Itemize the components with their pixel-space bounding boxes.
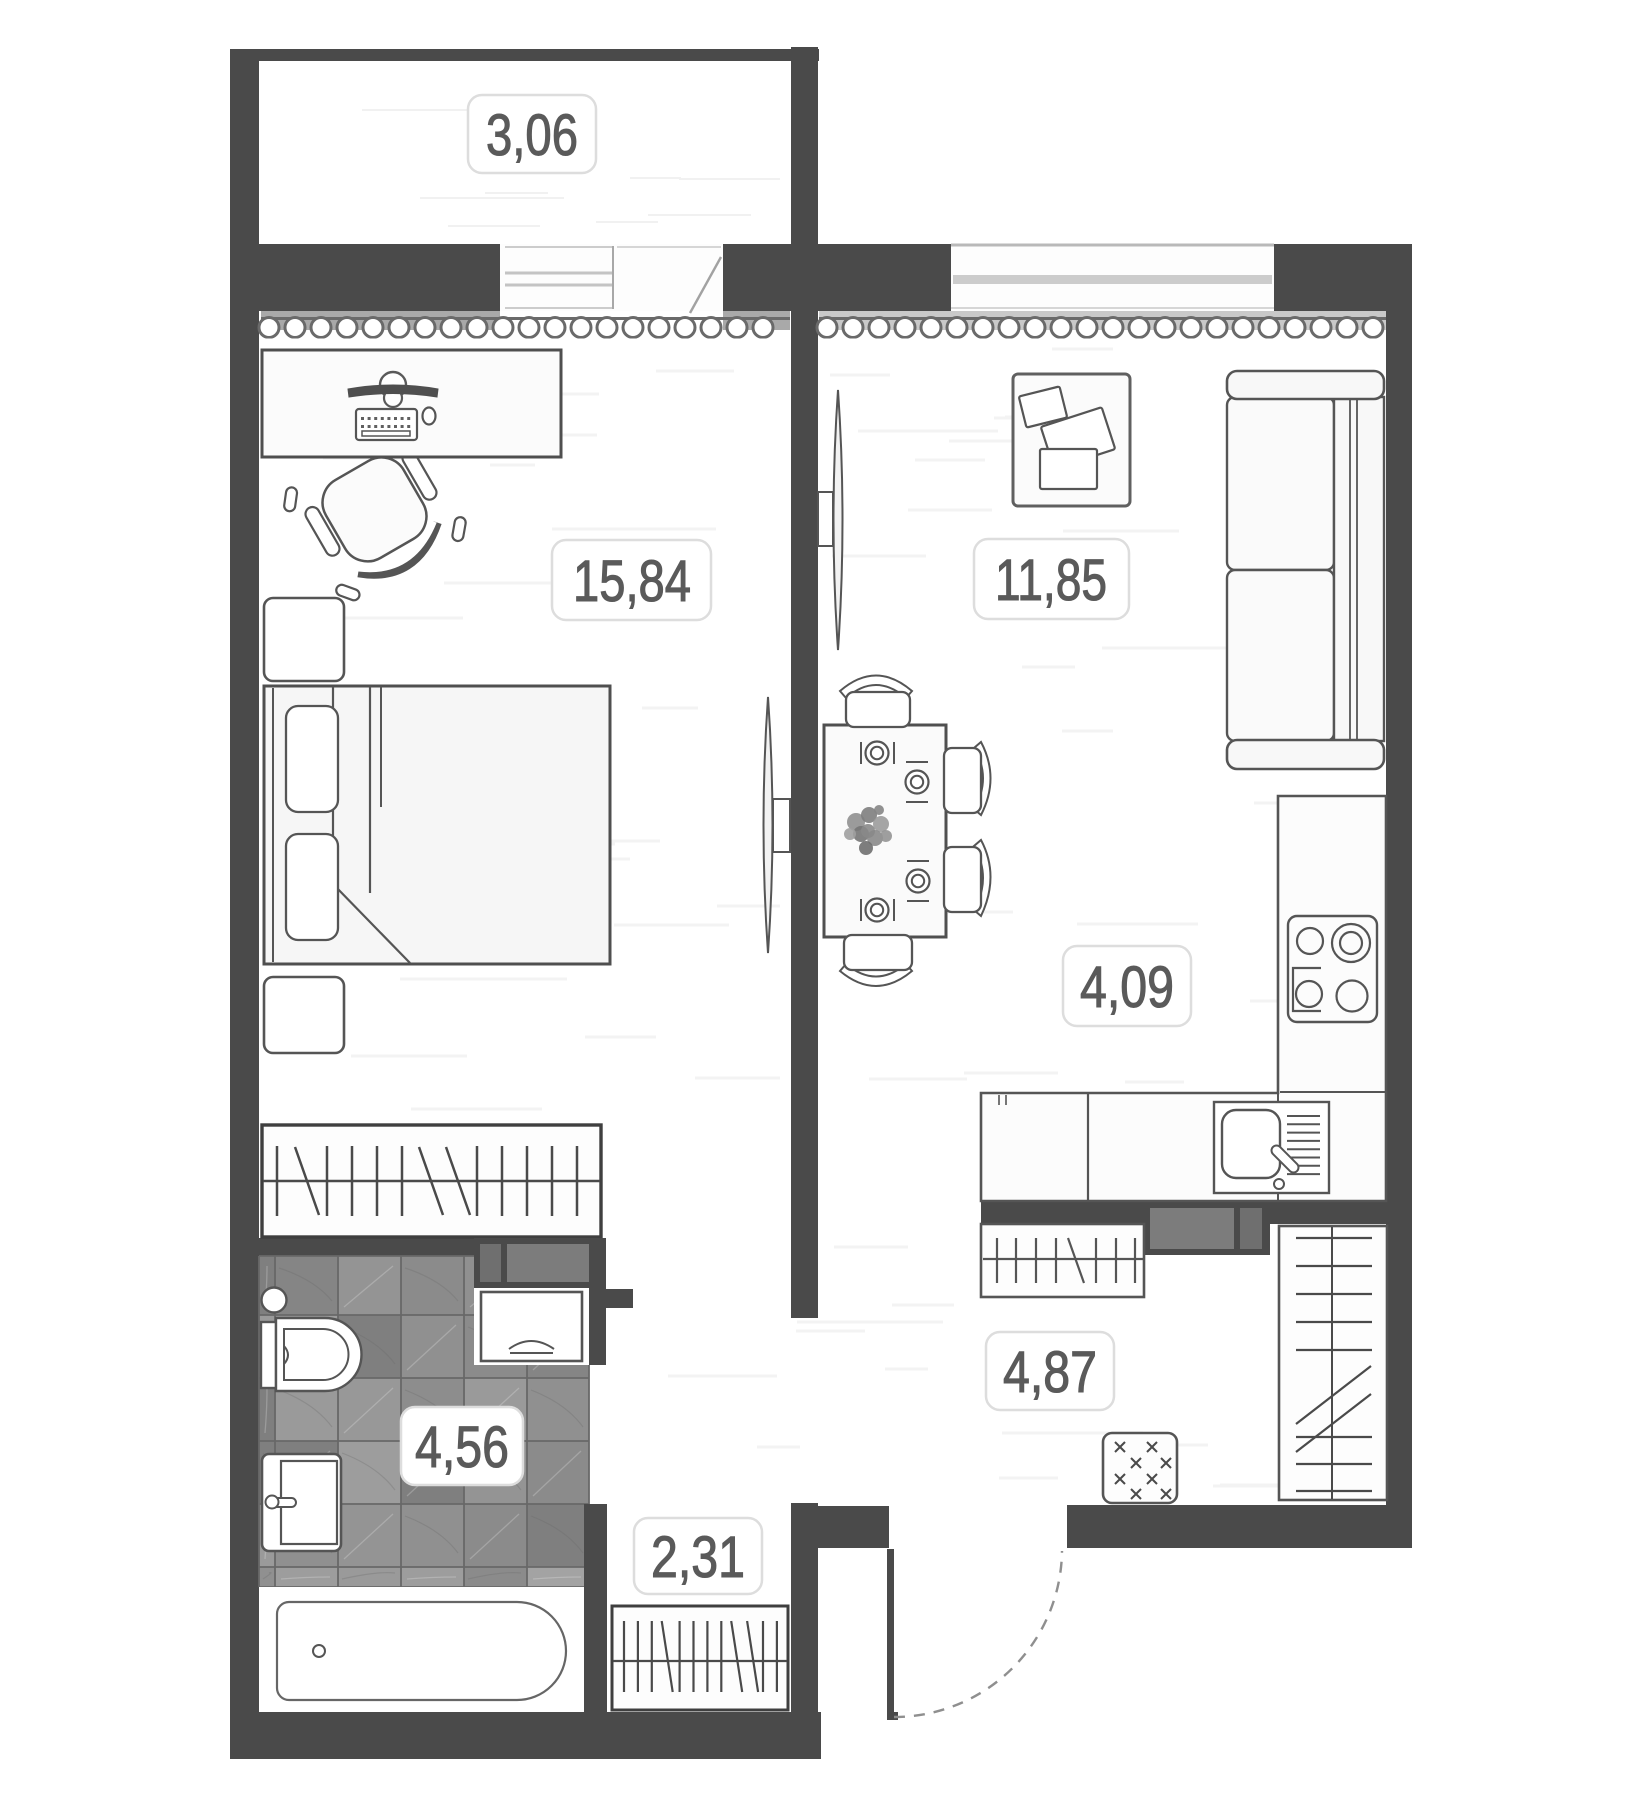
svg-text:11,85: 11,85: [995, 548, 1107, 613]
svg-text:2,31: 2,31: [651, 1525, 745, 1590]
svg-text:15,84: 15,84: [573, 549, 691, 614]
svg-text:4,09: 4,09: [1080, 955, 1174, 1020]
svg-text:4,56: 4,56: [415, 1415, 509, 1480]
svg-text:3,06: 3,06: [486, 103, 578, 168]
svg-text:4,87: 4,87: [1003, 1340, 1097, 1405]
